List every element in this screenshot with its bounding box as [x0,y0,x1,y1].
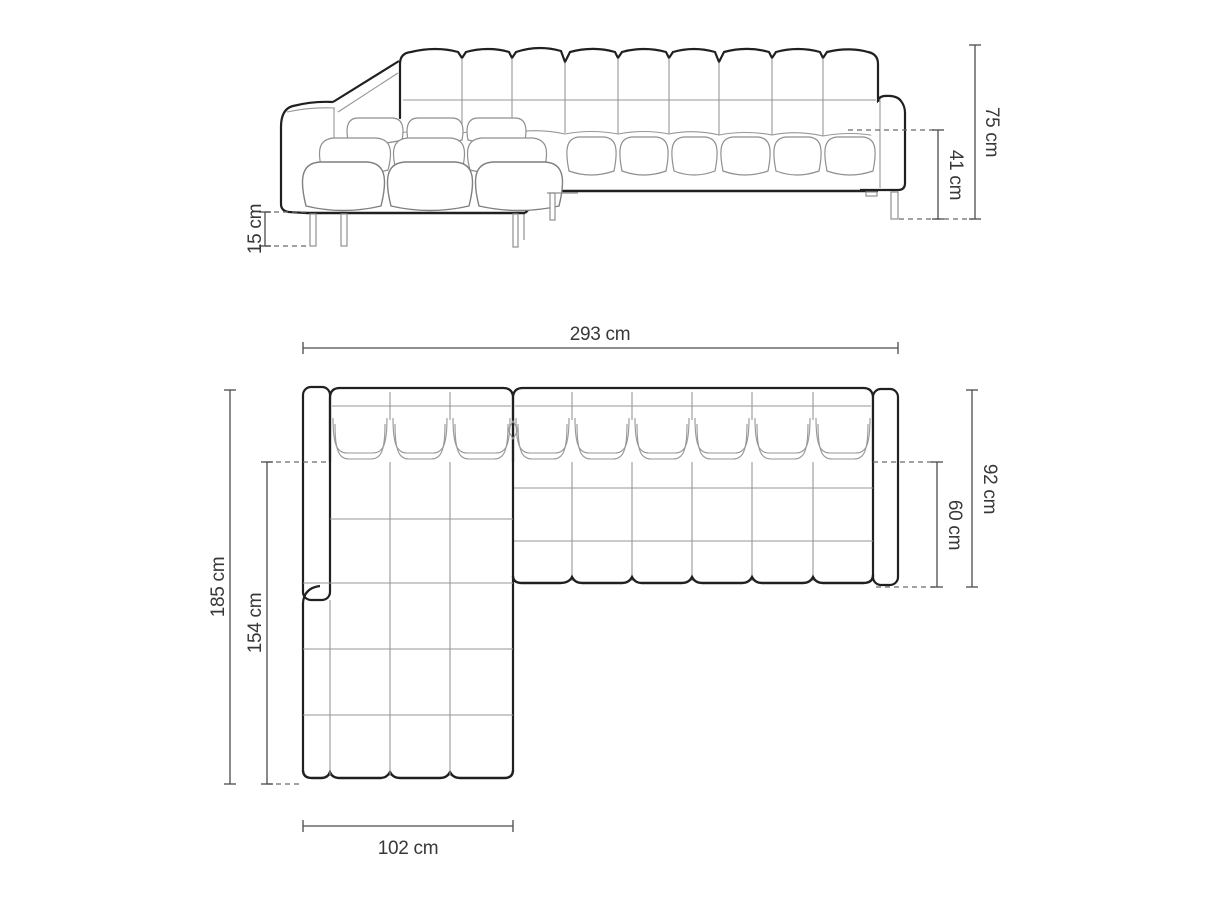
plan-projection-dashes [267,462,936,784]
dim-label-total-height: 75 cm [981,107,1002,157]
dim-line-chaise-width [303,820,513,832]
sofa-dimension-diagram: 75 cm 41 cm 15 cm 293 cm [0,0,1214,910]
plan-dimension-lines [224,390,978,832]
plan-chaise-bottom-edge [303,770,513,778]
dim-label-chaise-inner-depth: 154 cm [245,593,266,654]
plan-backrest-cushions [333,418,870,459]
plan-left-arm [303,387,330,600]
dim-label-seat-depth: 60 cm [944,500,965,550]
front-elevation-view: 75 cm 41 cm 15 cm [245,45,1002,254]
dim-label-seat-height: 41 cm [945,150,966,200]
plan-right-seat-grid [513,462,873,581]
sofa-backrest-outline [400,48,878,118]
dim-label-leg-height: 15 cm [245,204,266,254]
dim-label-total-depth: 185 cm [208,557,229,618]
plan-chaise-left-corner [303,586,320,770]
chaise-cushions-front-row [302,162,562,211]
dim-line-seat-depth [931,462,943,587]
diagram-canvas: 75 cm 41 cm 15 cm 293 cm [0,0,1214,910]
dim-line-body-depth [966,390,978,587]
dim-line-total-height [969,45,981,219]
plan-backrest-left [330,388,513,462]
dim-label-chaise-width: 102 cm [378,838,439,859]
top-plan-view: 293 cm [208,324,1000,859]
dim-line-seat-height [932,130,944,219]
plan-backrest-rails [332,392,871,420]
plan-chaise-grid [303,462,513,776]
dim-label-total-width: 293 cm [570,324,631,345]
plan-right-arm [873,389,898,585]
main-seat-cushions [567,137,875,175]
plan-main-front-edge [513,575,873,583]
dim-label-body-depth: 92 cm [979,464,1000,514]
